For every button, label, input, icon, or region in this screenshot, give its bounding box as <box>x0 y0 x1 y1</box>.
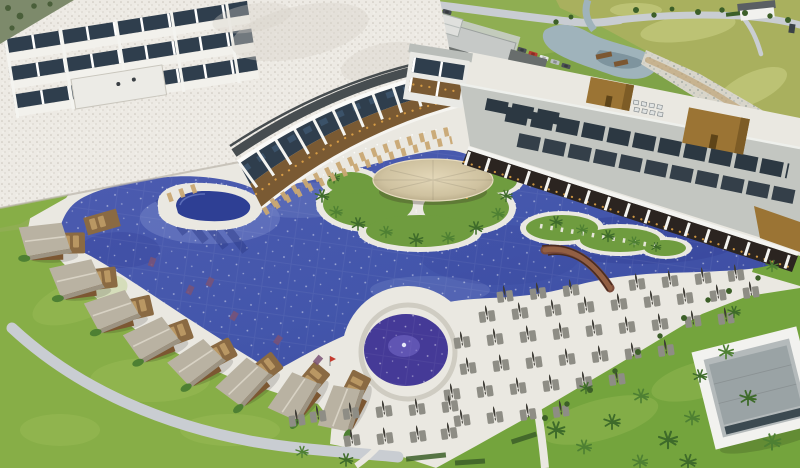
corner-glass-building <box>401 43 473 108</box>
signboard <box>788 24 795 34</box>
resort-aerial-scene <box>0 0 800 468</box>
resort-aerial-photo <box>0 0 800 468</box>
fountain <box>402 343 406 347</box>
